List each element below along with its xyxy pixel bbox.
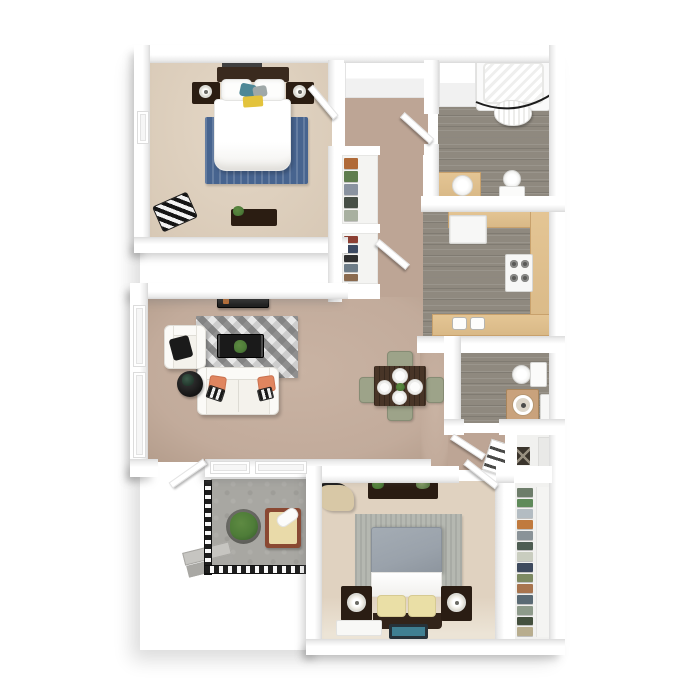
place-setting-south xyxy=(392,390,407,405)
bedroom2-pillow-right xyxy=(408,595,436,617)
living-window-lower xyxy=(133,372,146,458)
clothing-item xyxy=(517,488,533,497)
bedroom2-blue-tray xyxy=(389,624,428,639)
wall-bath1-left-upper xyxy=(424,60,439,114)
clothing-item xyxy=(344,210,358,221)
wall-closet-top xyxy=(342,146,380,155)
wall-bedroom1-bottom xyxy=(134,237,348,253)
side-table-plant xyxy=(182,374,194,386)
clothing-item xyxy=(517,606,533,615)
bath2-toilet-tank xyxy=(530,362,547,387)
clothing-item xyxy=(517,617,533,626)
walk-in-clothes xyxy=(516,487,534,637)
clothing-item xyxy=(517,584,533,593)
clothing-item xyxy=(517,531,533,540)
bedroom1-duvet xyxy=(214,99,291,171)
wall-bedroom2-closet-divider xyxy=(495,483,515,641)
range-stove xyxy=(505,254,533,292)
wall-closet-left xyxy=(328,146,342,302)
clothing-item xyxy=(517,542,533,551)
wall-left-bedroom1 xyxy=(134,45,150,253)
refrigerator xyxy=(449,215,487,244)
bedroom1-lamp-left xyxy=(199,85,212,98)
hall-closet-1-clothes xyxy=(343,157,359,222)
washer-lid xyxy=(513,395,533,415)
wall-living-bottom-left xyxy=(130,459,158,477)
wall-kitchen-bottom xyxy=(417,336,565,353)
clothing-item xyxy=(344,197,358,208)
wall-bedroom2-left xyxy=(306,466,322,655)
bath1-storage-shelves xyxy=(439,62,476,107)
bedroom1-lamp-right xyxy=(293,85,306,98)
wall-bath2-bottom-left xyxy=(444,419,464,435)
bedroom2-lamp-left xyxy=(347,593,366,612)
clothing-item xyxy=(344,184,358,195)
place-setting-west xyxy=(377,380,392,395)
bedroom2-lamp-right xyxy=(447,593,466,612)
hallway-floor-strip xyxy=(377,155,423,300)
clothing-item xyxy=(517,499,533,508)
kitchen-sink-left xyxy=(452,317,467,330)
clothing-item xyxy=(517,520,533,529)
clothing-item xyxy=(344,171,358,182)
wall-closet-horizontal-divider xyxy=(514,466,552,483)
living-window-upper xyxy=(133,305,146,367)
wall-bath1-left-lower xyxy=(424,144,439,202)
wall-bath1-kitchen xyxy=(421,196,565,212)
bedroom2-pillow-left xyxy=(377,595,406,617)
clothing-item xyxy=(517,552,533,561)
bath1-sink xyxy=(452,175,473,196)
clothing-item xyxy=(344,255,358,262)
clothing-item xyxy=(517,563,533,572)
shoe-rack xyxy=(516,447,530,465)
bedroom1-throw-yellow xyxy=(243,95,264,107)
wall-top xyxy=(134,45,564,63)
dining-chair-east xyxy=(426,377,444,403)
bedroom2-bench xyxy=(336,620,382,636)
linen-closet-shelves xyxy=(345,62,425,98)
clothing-item xyxy=(344,264,358,271)
bedroom1-dresser-plant xyxy=(233,206,244,216)
wall-bottom xyxy=(306,639,565,655)
wall-living-top xyxy=(130,283,348,299)
bedroom2-duvet xyxy=(371,527,442,574)
dining-centerpiece xyxy=(396,383,405,391)
clothing-item xyxy=(517,595,533,604)
clothing-item xyxy=(344,158,358,169)
wall-closet-mid xyxy=(342,224,380,233)
patio-railing-left xyxy=(204,480,212,575)
coffee-table-plant xyxy=(234,340,247,353)
bedroom2-sheet-fold xyxy=(371,572,442,597)
patio-plant xyxy=(230,512,258,540)
place-setting-east xyxy=(407,379,423,395)
shower-rod xyxy=(474,88,554,118)
kitchen-sink-right xyxy=(470,317,485,330)
bedroom1-window xyxy=(137,111,149,144)
patio-railing-bottom xyxy=(204,565,310,574)
bath2-toilet-bowl xyxy=(512,365,531,384)
patio-door-window-right xyxy=(255,461,307,474)
wall-bedroom2-top-left xyxy=(306,466,459,483)
kitchen-counter-bottom xyxy=(432,314,552,336)
patio-door-window-left xyxy=(210,461,250,474)
clothing-item xyxy=(344,274,358,281)
bedroom2-accent-chair xyxy=(318,485,354,511)
place-setting-north xyxy=(392,368,408,384)
wall-rear-hall-closet xyxy=(505,433,517,473)
clothing-item xyxy=(517,627,533,636)
floor-plan-canvas xyxy=(0,0,697,697)
clothing-item xyxy=(517,574,533,583)
clothing-item xyxy=(517,509,533,518)
